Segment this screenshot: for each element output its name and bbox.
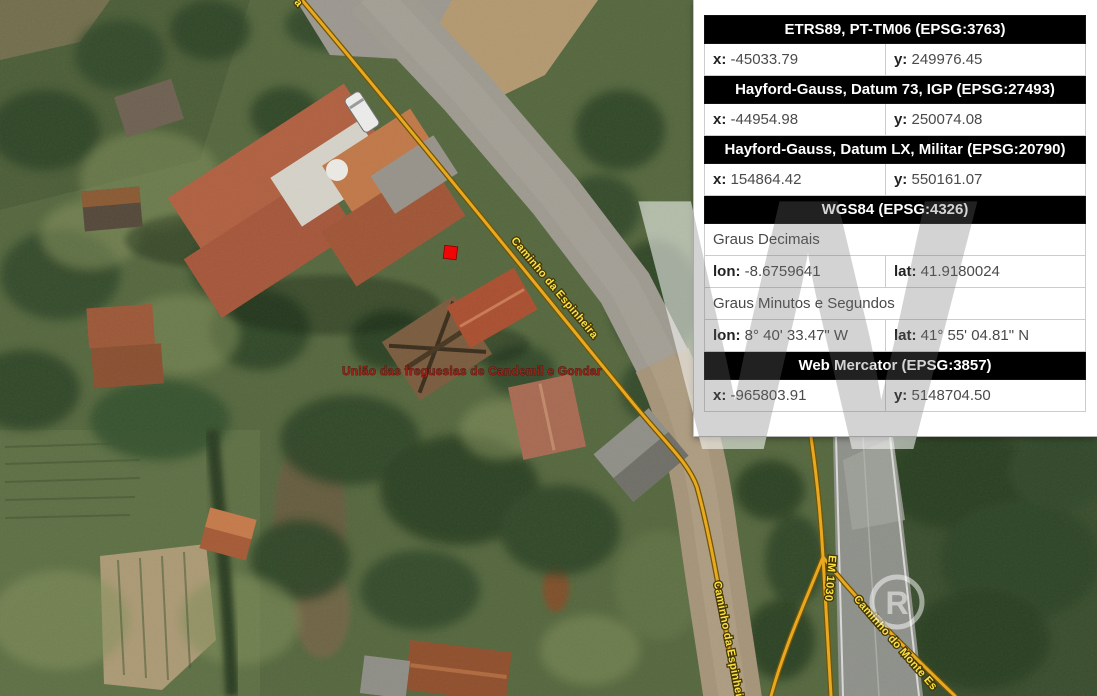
coord-cell: x: -965803.91 [705, 380, 886, 412]
table-row: x: -45033.79 y: 249976.45 [705, 44, 1086, 76]
coord-cell: y: 550161.07 [885, 164, 1085, 196]
section-header-wgs84: WGS84 (EPSG:4326) [705, 196, 1086, 224]
subheader-graus-decimais: Graus Decimais [705, 224, 1086, 256]
coord-cell: x: 154864.42 [705, 164, 886, 196]
table-row: x: -44954.98 y: 250074.08 [705, 104, 1086, 136]
table-row: lon: 8° 40' 33.47" W lat: 41° 55' 04.81"… [705, 320, 1086, 352]
section-header-webmercator: Web Mercator (EPSG:3857) [705, 352, 1086, 380]
section-header-datum73: Hayford-Gauss, Datum 73, IGP (EPSG:27493… [705, 76, 1086, 104]
coord-cell: y: 250074.08 [885, 104, 1085, 136]
table-row: x: -965803.91 y: 5148704.50 [705, 380, 1086, 412]
coord-cell: y: 5148704.50 [885, 380, 1085, 412]
section-header-datumlx: Hayford-Gauss, Datum LX, Militar (EPSG:2… [705, 136, 1086, 164]
coordinate-table: ETRS89, PT-TM06 (EPSG:3763) x: -45033.79… [704, 15, 1086, 412]
subheader-graus-minutos: Graus Minutos e Segundos [705, 288, 1086, 320]
table-row: x: 154864.42 y: 550161.07 [705, 164, 1086, 196]
table-row: lon: -8.6759641 lat: 41.9180024 [705, 256, 1086, 288]
coord-cell: x: -44954.98 [705, 104, 886, 136]
coord-cell: lat: 41.9180024 [885, 256, 1085, 288]
coord-cell: lat: 41° 55' 04.81" N [885, 320, 1085, 352]
section-header-etrs89: ETRS89, PT-TM06 (EPSG:3763) [705, 16, 1086, 44]
app-window: Caminho da Espinheira Caminho da Espinhe… [0, 0, 1097, 696]
coord-cell: x: -45033.79 [705, 44, 886, 76]
coord-cell: y: 249976.45 [885, 44, 1085, 76]
coordinate-panel: ETRS89, PT-TM06 (EPSG:3763) x: -45033.79… [693, 0, 1097, 437]
coord-cell: lon: -8.6759641 [705, 256, 886, 288]
coord-cell: lon: 8° 40' 33.47" W [705, 320, 886, 352]
